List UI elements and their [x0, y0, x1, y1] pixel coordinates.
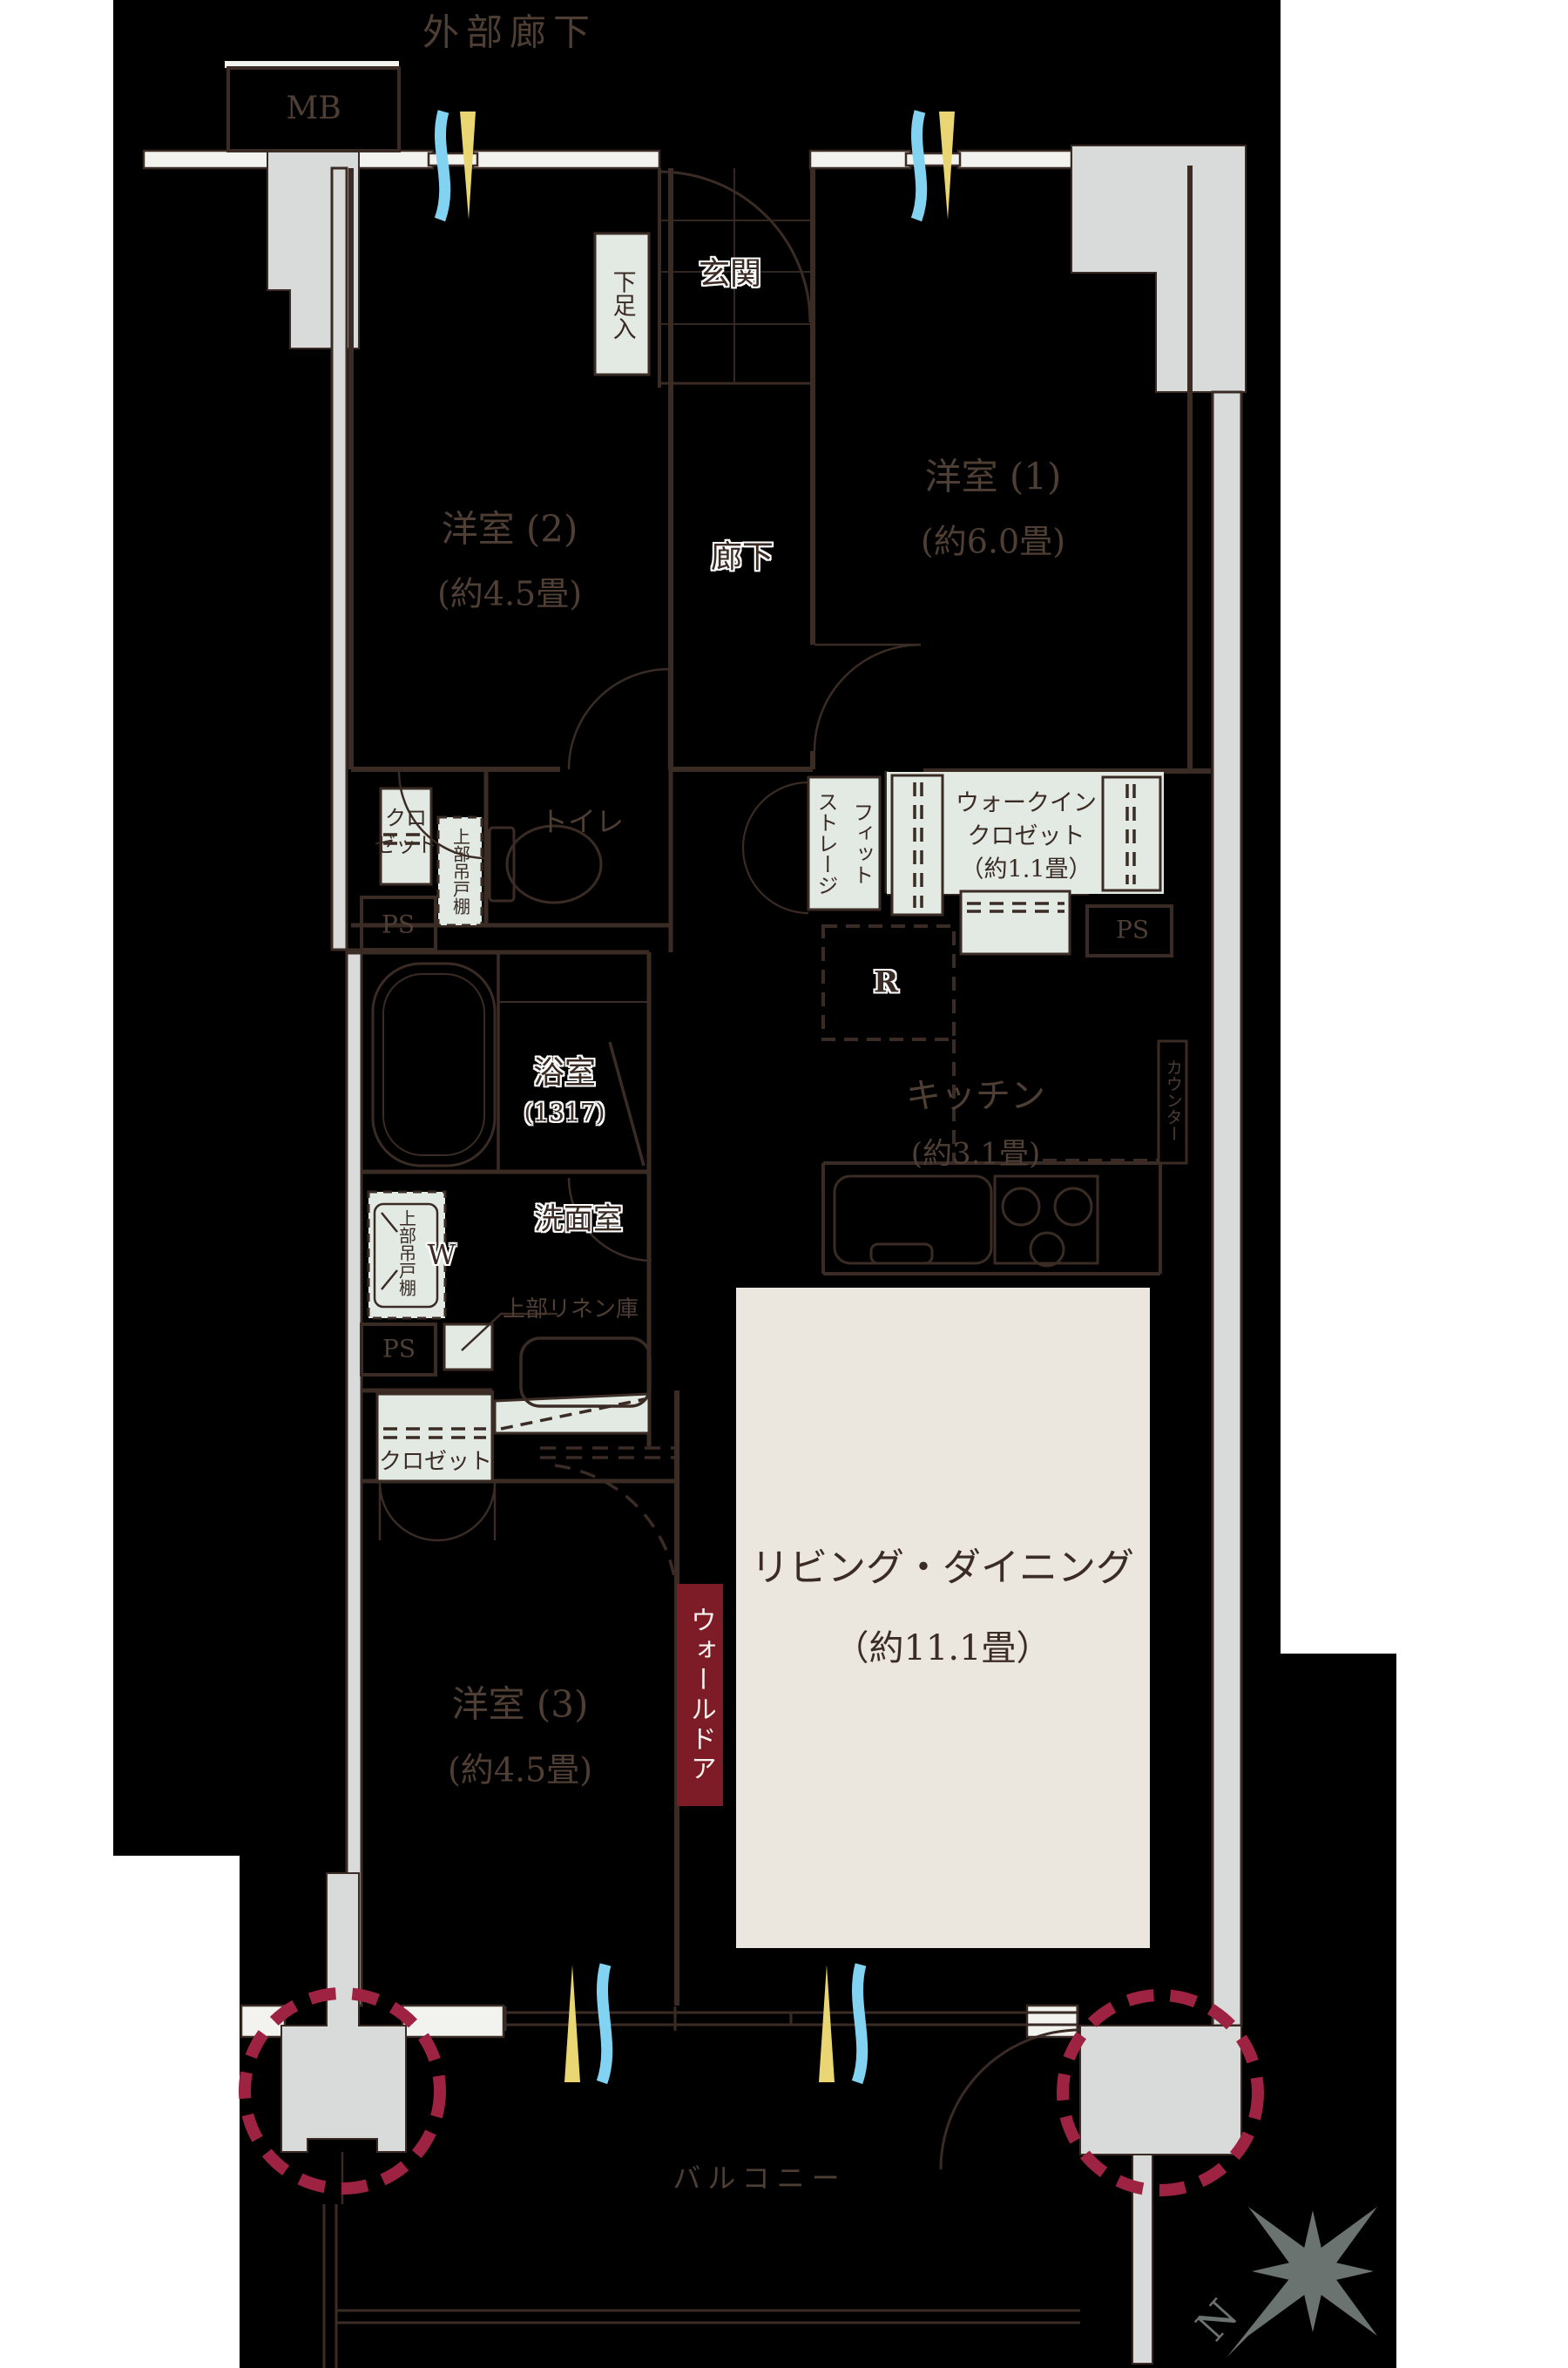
upper-cabinet-washer-label: 上部吊戸棚: [394, 1209, 419, 1296]
room2-size: (約4.5畳): [437, 570, 582, 618]
ps-label-3: PS: [382, 1332, 416, 1368]
ps-label-2: PS: [1116, 913, 1149, 949]
floorplan-drawing: [0, 0, 1568, 2368]
living-dining-name: リビング・ダイニング: [751, 1540, 1134, 1596]
floorplan-page: 外部廊下 MB 玄関 下足入 洋室 (2) (約4.5畳) 洋室 (1) (約6…: [0, 0, 1568, 2368]
mb-label: MB: [286, 86, 341, 132]
counter-label: カウンター: [1160, 1059, 1185, 1142]
living-dining-floor: [736, 1288, 1150, 1948]
room3-name: 洋室 (3): [452, 1679, 589, 1732]
room1-size: (約6.0畳): [921, 518, 1065, 565]
wic-label: ウォークイン クロゼット （約1.1畳）: [956, 787, 1097, 885]
closet-lower-label: クロゼット: [379, 1446, 492, 1479]
room2-name: 洋室 (2): [442, 504, 578, 557]
upper-cabinet-toilet-label: 上部吊戸棚: [448, 828, 473, 915]
room3-size: (約4.5畳): [448, 1746, 592, 1794]
exterior-corridor-label: 外部廊下: [422, 7, 597, 60]
kitchen-label: キッチン: [906, 1071, 1045, 1121]
living-dining-size: （約11.1畳）: [834, 1623, 1051, 1674]
wall-door-label: ウォールドア: [681, 1607, 720, 1784]
ps-label-1: PS: [382, 908, 415, 944]
room1-name: 洋室 (1): [925, 451, 1062, 504]
shoe-cabinet-label: 下足入: [605, 270, 639, 341]
fridge-label: R: [874, 961, 898, 1004]
bathroom-label: 浴室: [533, 1051, 596, 1096]
hallway-label: 廊下: [711, 535, 774, 580]
washroom-label: 洗面室: [534, 1198, 623, 1241]
washer-label: W: [428, 1235, 456, 1275]
bathroom-size: (1317): [524, 1096, 605, 1132]
kitchen-size: (約3.1畳): [911, 1133, 1041, 1175]
balcony-label: バルコニー: [672, 2158, 846, 2198]
upper-linen-label: 上部リネン庫: [503, 1294, 639, 1327]
fit-storage-label: フィット ストレージ: [808, 791, 879, 896]
closet-upper-label: クロ ゼット: [375, 805, 437, 859]
toilet-label: トイレ: [540, 802, 624, 842]
entrance-label: 玄関: [699, 252, 761, 297]
